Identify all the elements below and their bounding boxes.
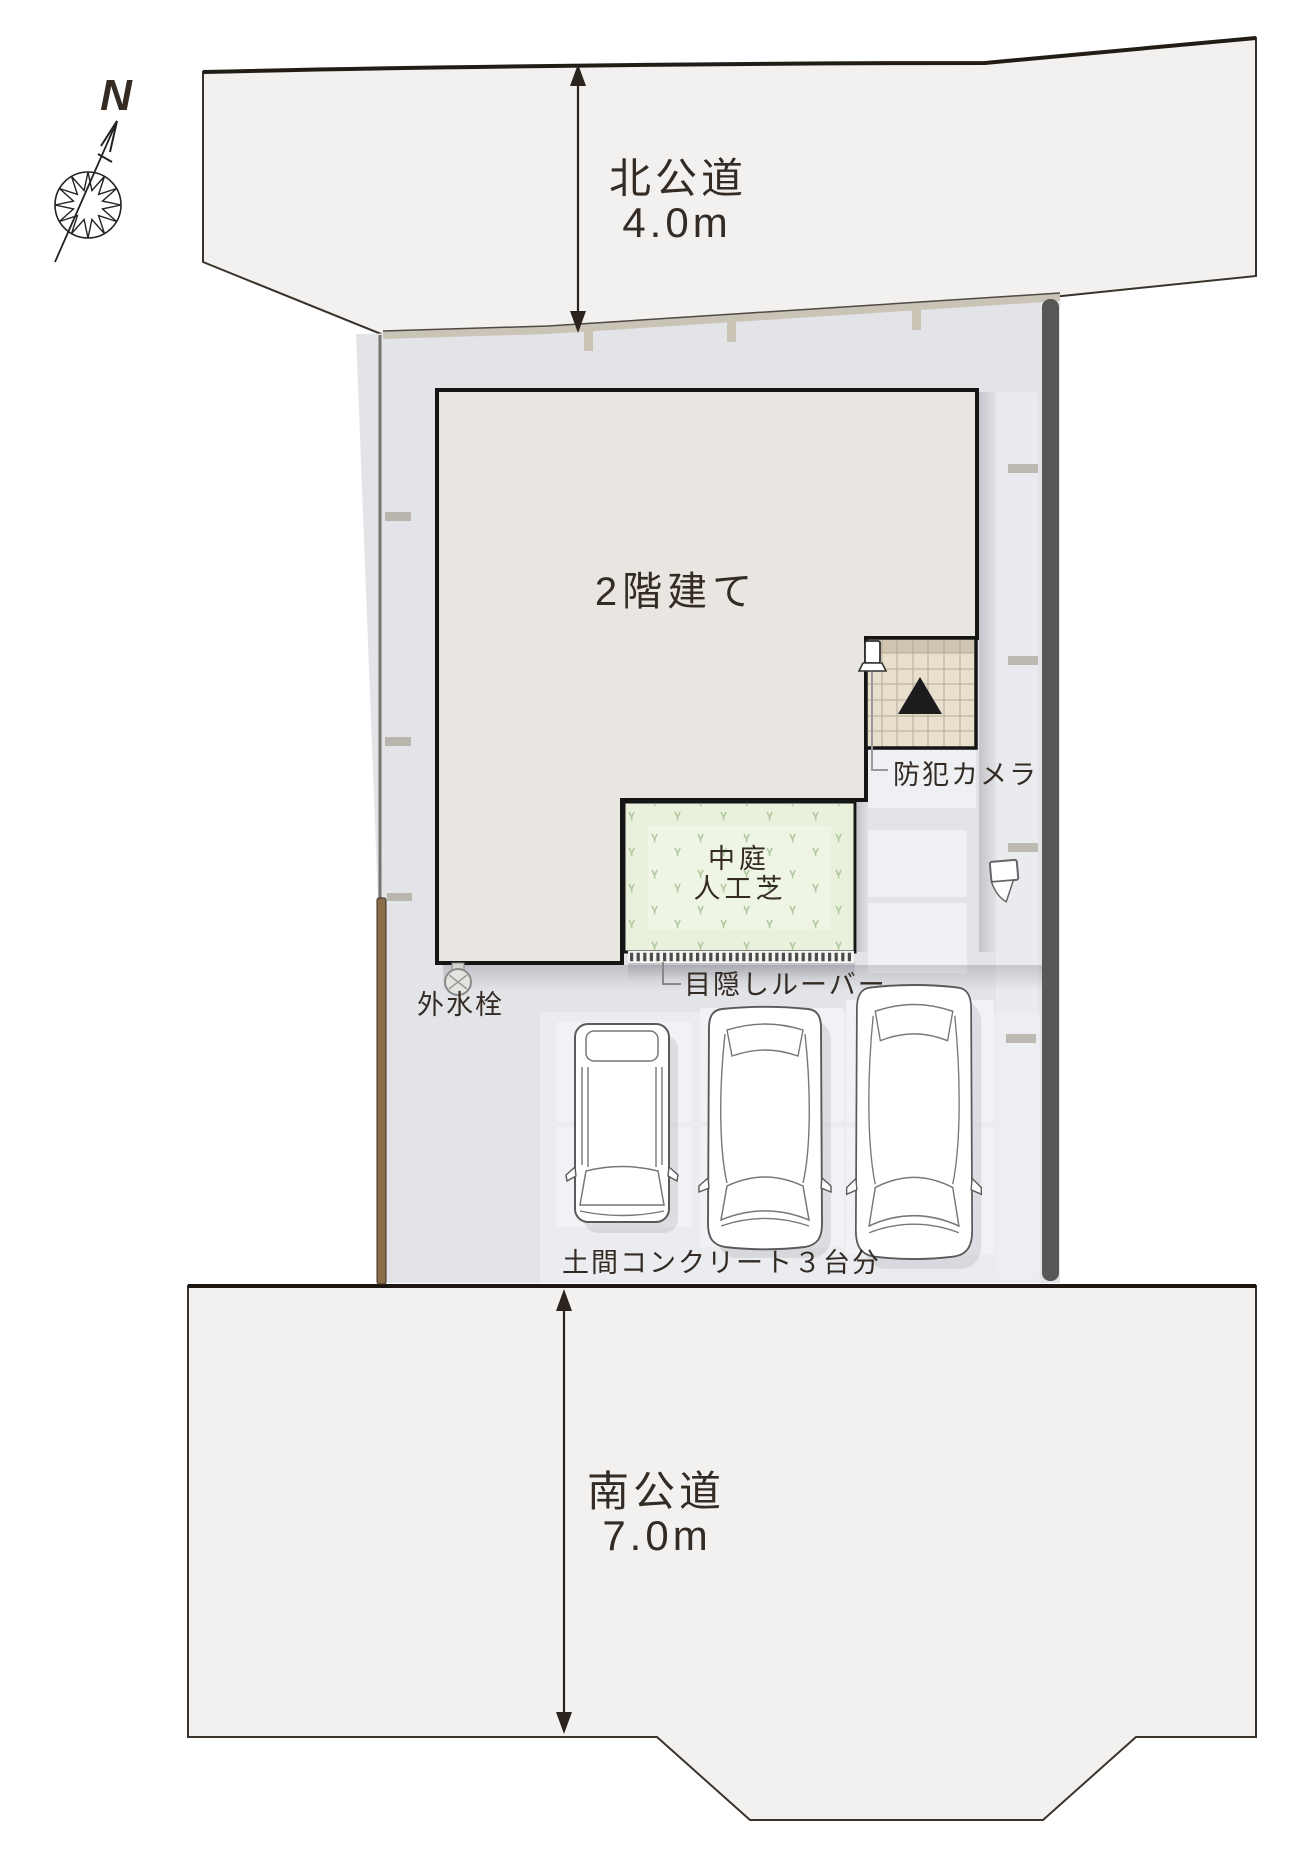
- south-road: [188, 1286, 1256, 1820]
- site-plan-drawing: N 北公道 4.0m 2階建て 防犯カメラ 中庭 人工芝 目隠しルーバー 外水栓…: [0, 0, 1298, 1870]
- courtyard-label-line2: 人工芝: [694, 874, 787, 904]
- louver-label: 目隠しルーバー: [684, 970, 887, 1000]
- parking-label: 土間コンクリート３台分: [562, 1248, 881, 1278]
- security-camera-label: 防犯カメラ: [893, 760, 1038, 790]
- north-road-width: 4.0m: [622, 199, 731, 246]
- courtyard-label-line1: 中庭: [708, 844, 770, 874]
- compass-north-letter: N: [100, 71, 133, 120]
- site-plan-canvas: N 北公道 4.0m 2階建て 防犯カメラ 中庭 人工芝 目隠しルーバー 外水栓…: [0, 0, 1298, 1870]
- car-3: [847, 985, 982, 1269]
- porch-step-shade: [868, 640, 974, 653]
- compass-rose: N: [55, 71, 133, 262]
- south-road-name: 南公道: [587, 1468, 725, 1515]
- water-tap-label: 外水栓: [417, 990, 504, 1020]
- north-road-name: 北公道: [609, 155, 747, 202]
- west-wood-fence: [377, 898, 386, 1284]
- car-1: [566, 1024, 678, 1233]
- car-2: [699, 1007, 831, 1258]
- louver-backing: [628, 951, 854, 963]
- south-road-width: 7.0m: [602, 1512, 711, 1559]
- building-label: 2階建て: [595, 570, 757, 614]
- east-fence: [1042, 299, 1059, 1281]
- south-road-surface: [188, 1286, 1256, 1820]
